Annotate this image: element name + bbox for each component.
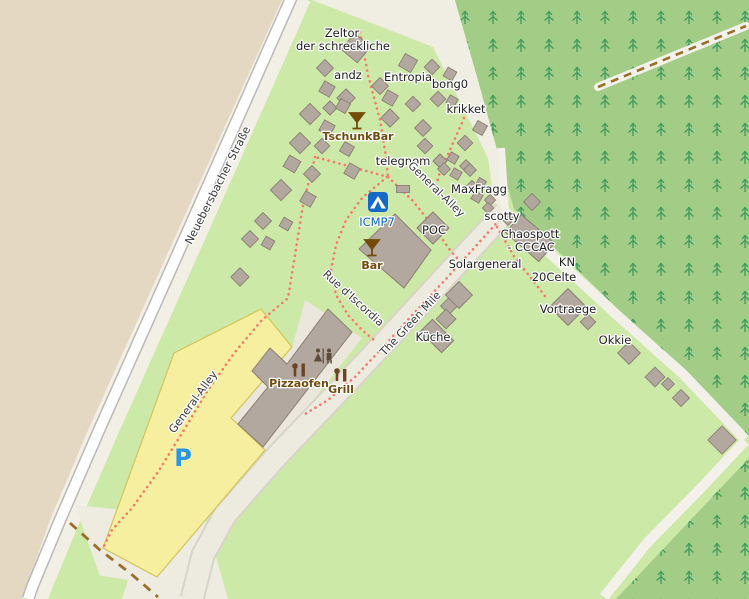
map-svg: Zeltor der schreckliche andz Entropia bo… bbox=[0, 0, 749, 599]
label-icmp7: ICMP7 bbox=[359, 215, 395, 229]
map-canvas[interactable]: Zeltor der schreckliche andz Entropia bo… bbox=[0, 0, 749, 599]
campsite-icon bbox=[368, 192, 388, 212]
label-bong0: bong0 bbox=[432, 77, 468, 91]
label-krikket: krikket bbox=[446, 102, 486, 116]
label-zeltor: Zeltor bbox=[325, 26, 360, 40]
label-20celte: 20Celte bbox=[532, 270, 577, 284]
label-okkie: Okkie bbox=[599, 333, 632, 347]
label-solargeneral: Solargeneral bbox=[449, 257, 522, 271]
label-cccac: - CCCAC bbox=[507, 240, 555, 254]
label-pizzaofen: Pizzaofen bbox=[269, 377, 329, 390]
label-vortraege: Vortraege bbox=[540, 302, 596, 316]
label-bar: Bar bbox=[361, 259, 383, 272]
label-tschunkbar: TschunkBar bbox=[322, 130, 394, 143]
label-scotty: scotty bbox=[484, 209, 519, 223]
label-grill: Grill bbox=[328, 383, 354, 396]
label-andz: andz bbox=[334, 68, 362, 82]
label-zeltor-2: der schreckliche bbox=[296, 39, 390, 53]
label-kn: KN bbox=[559, 255, 575, 269]
label-entropia: Entropia bbox=[384, 70, 432, 84]
label-maxfragg: MaxFragg bbox=[451, 182, 507, 196]
label-poc: POC bbox=[422, 223, 446, 237]
track bbox=[501, 148, 505, 212]
building bbox=[397, 186, 410, 193]
label-chaospott: Chaospott bbox=[501, 227, 560, 241]
parking-symbol: P bbox=[174, 444, 192, 472]
label-kueche: Küche bbox=[416, 330, 451, 344]
